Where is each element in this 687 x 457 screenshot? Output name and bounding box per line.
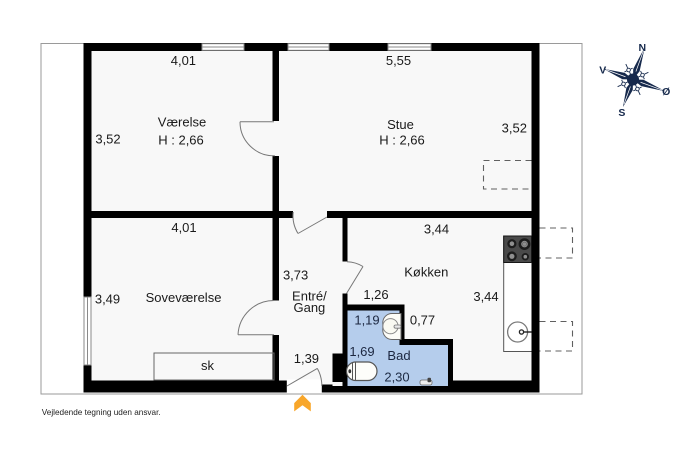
svg-text:Bad: Bad — [387, 348, 410, 363]
svg-text:Gang: Gang — [293, 300, 325, 315]
svg-text:3,49: 3,49 — [95, 292, 120, 307]
svg-text:4,01: 4,01 — [171, 220, 196, 235]
svg-text:H : 2,66: H : 2,66 — [158, 132, 204, 147]
svg-text:H : 2,66: H : 2,66 — [379, 132, 425, 147]
svg-text:V: V — [599, 65, 606, 77]
svg-text:Køkken: Køkken — [404, 265, 448, 280]
svg-text:Soveværelse: Soveværelse — [146, 290, 222, 305]
svg-text:Stue: Stue — [387, 117, 414, 132]
svg-text:Værelse: Værelse — [158, 115, 206, 130]
svg-text:3,44: 3,44 — [424, 221, 449, 236]
svg-text:1,26: 1,26 — [363, 287, 388, 302]
svg-text:1,19: 1,19 — [354, 313, 379, 328]
svg-text:S: S — [618, 107, 625, 119]
svg-text:1,39: 1,39 — [294, 351, 319, 366]
svg-text:3,73: 3,73 — [283, 267, 308, 282]
svg-text:1,69: 1,69 — [349, 344, 374, 359]
svg-text:4,01: 4,01 — [171, 53, 196, 68]
svg-text:3,52: 3,52 — [502, 121, 527, 136]
svg-text:5,55: 5,55 — [386, 53, 411, 68]
svg-text:N: N — [639, 42, 647, 54]
svg-text:2,30: 2,30 — [384, 369, 409, 384]
svg-text:Ø: Ø — [662, 86, 670, 98]
svg-text:3,52: 3,52 — [95, 132, 120, 147]
svg-text:0,77: 0,77 — [410, 313, 435, 328]
svg-text:sk: sk — [201, 358, 215, 373]
svg-text:Vejledende tegning uden ansvar: Vejledende tegning uden ansvar. — [42, 408, 161, 417]
svg-text:3,44: 3,44 — [473, 289, 498, 304]
